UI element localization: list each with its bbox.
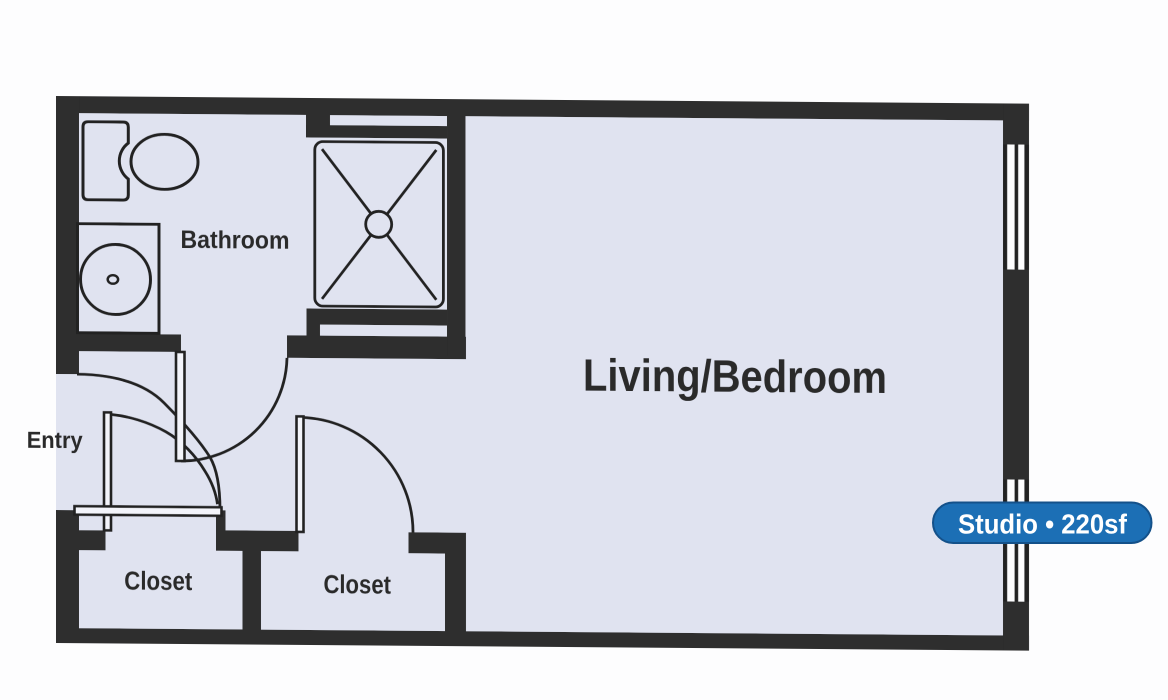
svg-text:Living/Bedroom: Living/Bedroom (583, 350, 887, 403)
svg-text:Entry: Entry (27, 427, 83, 453)
svg-text:Closet: Closet (124, 566, 192, 597)
svg-text:Closet: Closet (323, 569, 391, 600)
svg-text:Studio • 220sf: Studio • 220sf (958, 508, 1128, 539)
svg-text:Bathroom: Bathroom (181, 227, 290, 255)
